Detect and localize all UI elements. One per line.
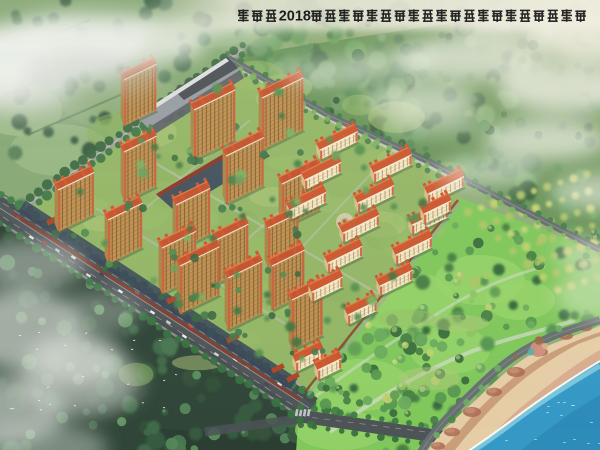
svg-text:2018: 2018 bbox=[279, 9, 311, 25]
